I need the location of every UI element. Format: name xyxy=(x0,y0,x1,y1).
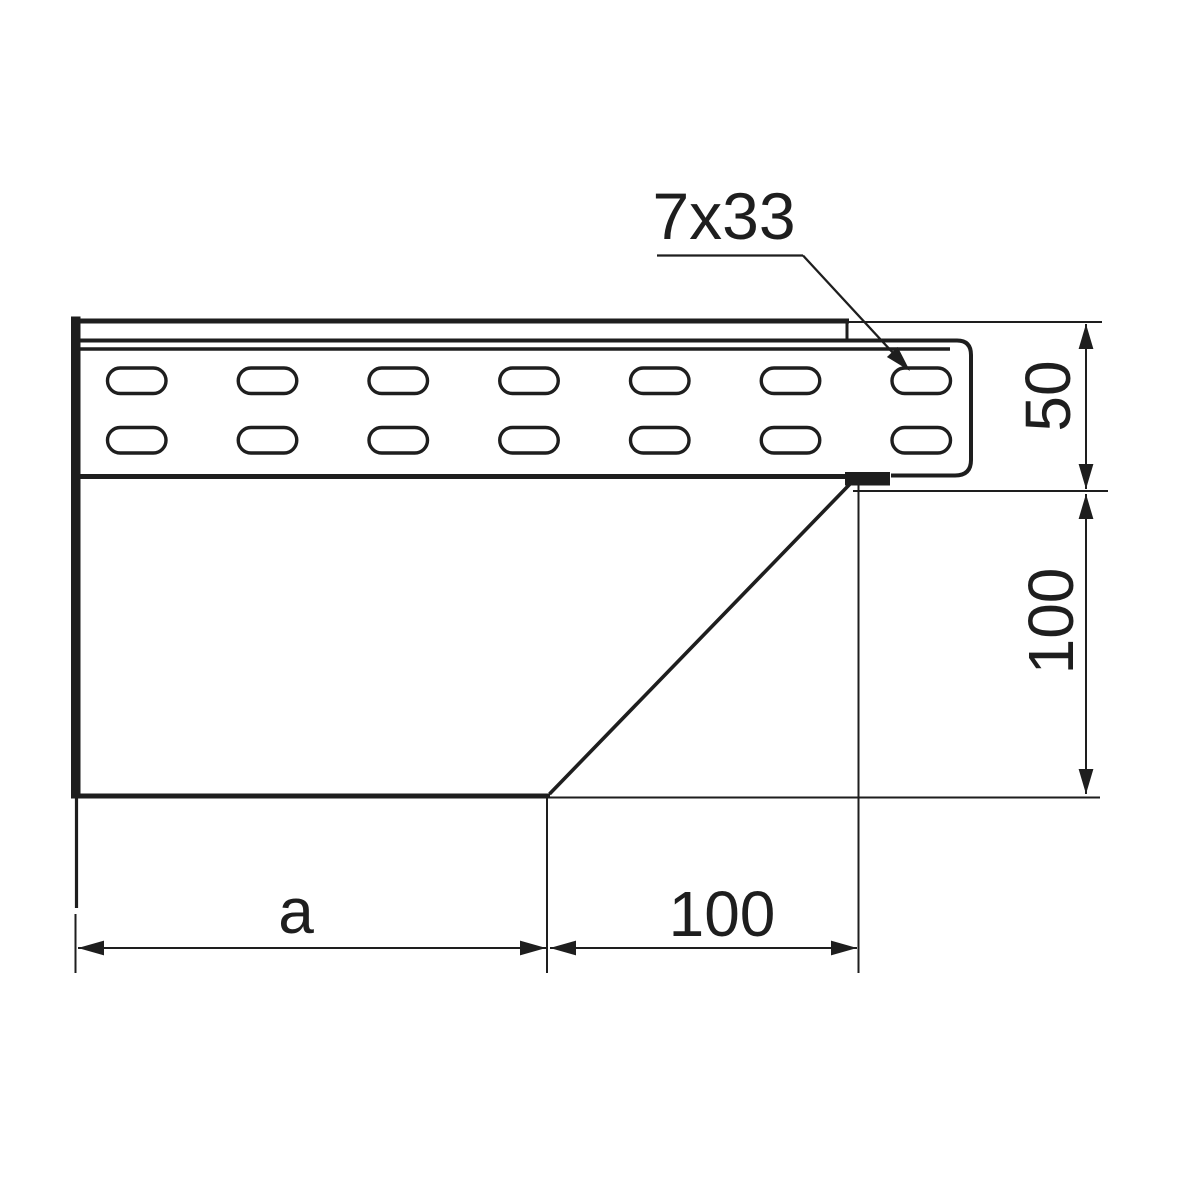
arrowhead-rail-height-top xyxy=(1079,324,1094,349)
slot-callout-label: 7x33 xyxy=(652,179,795,253)
drawing-canvas: 50 100 a 100 7x33 xyxy=(0,0,1200,1200)
rail-end-cap-outline xyxy=(80,341,971,476)
slot-hole xyxy=(631,428,690,454)
slot-hole xyxy=(238,428,297,454)
technical-drawing: 50 100 a 100 7x33 xyxy=(0,0,1200,1200)
rail-slots xyxy=(108,368,951,453)
dimension-body-height: 100 xyxy=(1015,494,1093,794)
arrowhead-body-height-bottom xyxy=(1079,769,1094,794)
arrowhead-width-100-right xyxy=(831,941,857,956)
slot-hole xyxy=(238,368,297,394)
arrowhead-width-100-left xyxy=(550,941,576,956)
rail-left-flange xyxy=(71,317,81,797)
slot-hole xyxy=(369,368,428,394)
slot-hole xyxy=(369,428,428,454)
extension-lines xyxy=(76,322,1109,973)
dim-label-width-a: a xyxy=(278,875,314,947)
arrowhead-width-a-left xyxy=(78,941,104,956)
tray-rail xyxy=(71,317,971,797)
dim-label-width-100: 100 xyxy=(669,878,776,950)
slot-hole xyxy=(500,428,559,454)
slot-hole xyxy=(631,368,690,394)
dimension-width-100: 100 xyxy=(550,878,857,955)
dimension-rail-height: 50 xyxy=(1012,324,1093,489)
reducer-body xyxy=(71,484,850,796)
arrowhead-body-height-top xyxy=(1079,494,1094,519)
body-diagonal-edge xyxy=(550,484,851,794)
arrowhead-rail-height-bottom xyxy=(1079,464,1094,489)
slot-hole xyxy=(761,428,820,454)
dim-label-rail-height: 50 xyxy=(1012,360,1084,431)
slot-hole xyxy=(500,368,559,394)
slot-hole xyxy=(892,428,951,454)
slot-hole xyxy=(892,368,951,394)
slot-hole xyxy=(108,428,167,454)
weld-mark xyxy=(845,472,890,486)
slot-hole xyxy=(761,368,820,394)
slot-hole xyxy=(108,368,167,394)
dim-label-body-height: 100 xyxy=(1015,568,1087,675)
arrowhead-width-a-right xyxy=(520,941,546,956)
dimension-width-a: a xyxy=(78,875,546,955)
